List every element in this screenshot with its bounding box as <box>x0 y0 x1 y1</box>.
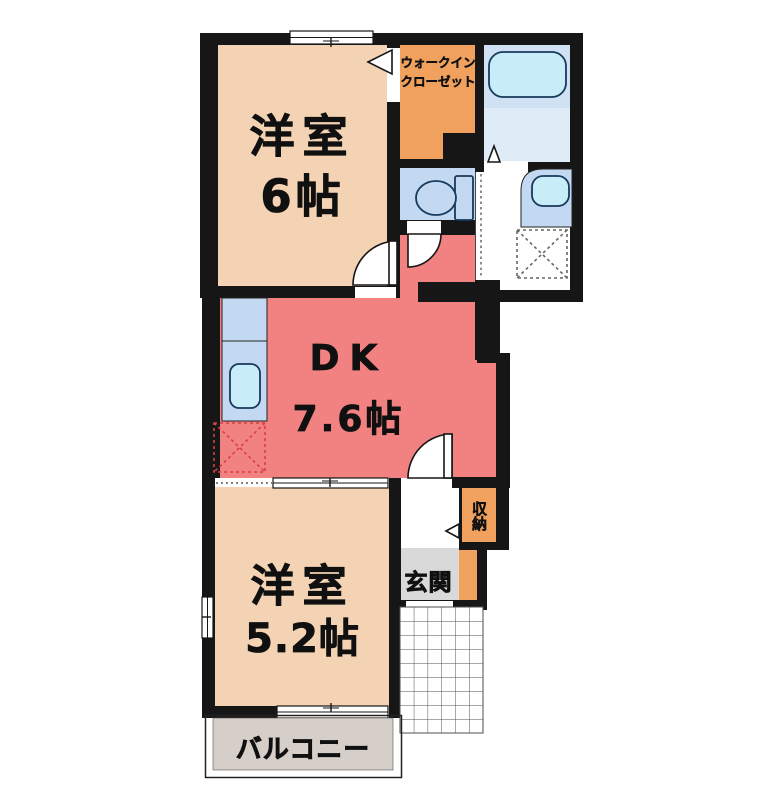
room-western52-size: 5.2帖 <box>215 606 390 664</box>
wall-segment <box>450 477 510 488</box>
entrance-porch <box>400 607 483 733</box>
vanity-sink-icon <box>521 169 572 227</box>
room-western6-size: 6帖 <box>218 160 387 225</box>
walk-in-closet-label-line2: クローゼット <box>398 71 478 90</box>
wall-segment <box>202 298 220 478</box>
dk-name: DK <box>220 338 477 379</box>
shoe-cabinet <box>459 548 477 601</box>
wall-segment <box>200 33 583 45</box>
door-leaf <box>389 241 397 285</box>
dk-size: 7.6帖 <box>220 390 477 442</box>
hallway-floor <box>400 478 459 548</box>
door-opening <box>407 221 441 234</box>
dk-floor-bump <box>477 358 496 478</box>
window-icon <box>290 31 373 47</box>
storage-label: 収納 <box>461 491 497 541</box>
room-western52-name: 洋室 <box>215 550 390 614</box>
passage-opening <box>215 479 273 487</box>
wall-segment <box>398 159 478 168</box>
wall-segment <box>200 45 218 298</box>
window-icon <box>202 597 213 638</box>
wall-segment <box>475 280 500 360</box>
wall-segment <box>496 358 510 480</box>
wall-segment <box>418 282 477 302</box>
room-western6-name: 洋室 <box>218 100 387 165</box>
door-opening <box>355 287 396 298</box>
floor-plan: 洋室 6帖 ウォークイン クローゼット DK 7.6帖 洋室 5.2帖 収納 玄… <box>0 0 760 800</box>
walk-in-closet-label-line1: ウォークイン <box>398 52 478 71</box>
bathtub-icon <box>489 52 566 97</box>
walk-in-closet-floor-ext <box>398 133 443 163</box>
window-icon <box>273 478 388 488</box>
wall-segment <box>496 488 509 550</box>
tiled-porch <box>400 607 483 733</box>
door-opening <box>406 478 452 488</box>
balcony-label: バルコニー <box>213 729 393 766</box>
entrance-label: 玄関 <box>398 563 459 597</box>
wall-segment <box>570 33 583 302</box>
wall-segment <box>389 478 401 718</box>
